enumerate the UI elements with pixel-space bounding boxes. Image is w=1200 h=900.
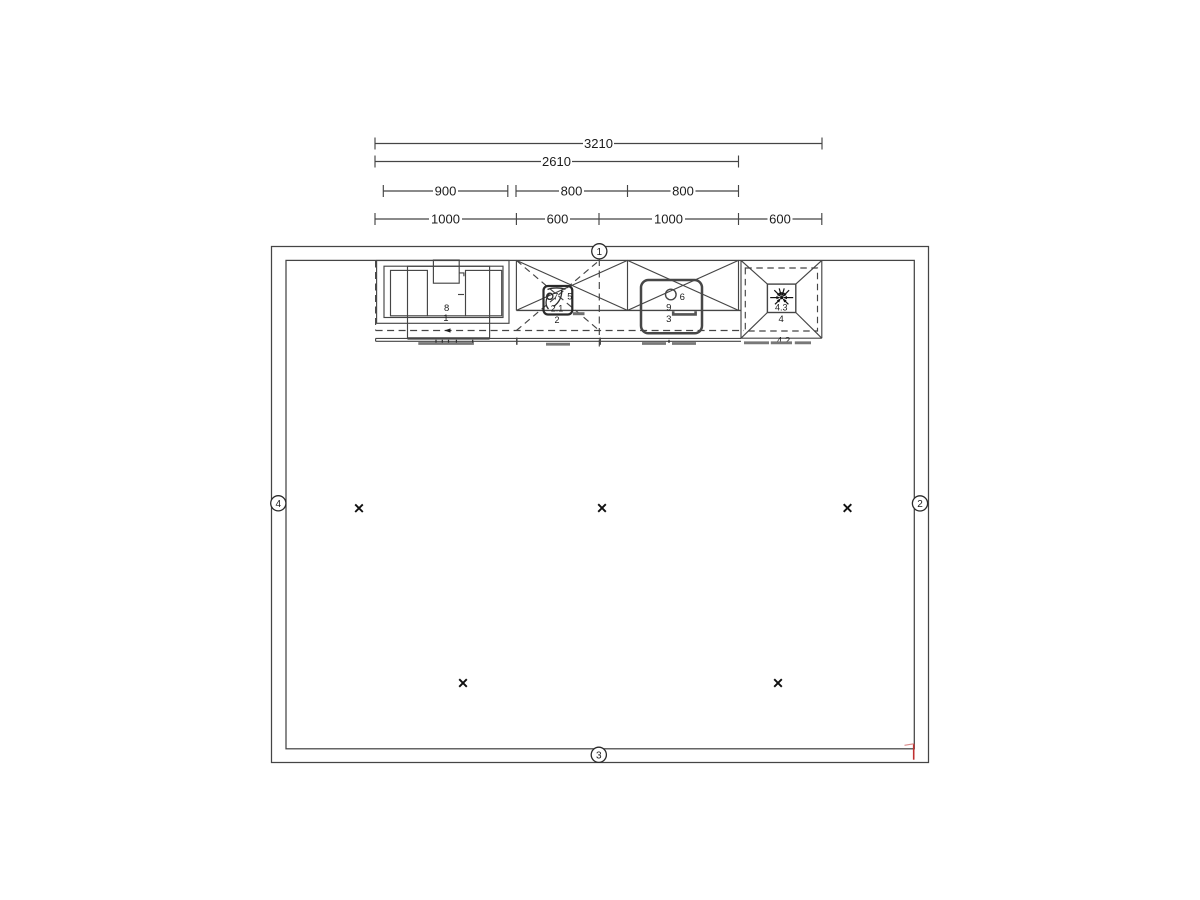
svg-text:4: 4: [779, 314, 784, 325]
svg-text:4.3: 4.3: [775, 303, 788, 313]
svg-text:800: 800: [672, 184, 694, 199]
svg-text:2610: 2610: [542, 154, 571, 169]
svg-text:2: 2: [917, 499, 923, 510]
svg-text:1000: 1000: [654, 212, 683, 227]
svg-text:3: 3: [666, 314, 671, 325]
svg-text:4: 4: [276, 499, 282, 510]
svg-text:2: 2: [554, 315, 559, 325]
svg-text:800: 800: [561, 184, 583, 199]
svg-text:1000: 1000: [431, 212, 460, 227]
svg-text:6: 6: [680, 292, 685, 303]
svg-text:2.1: 2.1: [551, 303, 564, 313]
svg-text:1: 1: [443, 313, 448, 324]
svg-text:3: 3: [596, 751, 602, 762]
svg-text:1: 1: [597, 247, 603, 258]
svg-text:900: 900: [435, 184, 457, 199]
svg-text:9: 9: [666, 303, 671, 314]
svg-text:3210: 3210: [584, 136, 613, 151]
svg-text:600: 600: [547, 212, 569, 227]
svg-text:7: 7: [553, 291, 558, 301]
svg-text:600: 600: [769, 212, 791, 227]
svg-text:5: 5: [567, 291, 572, 301]
svg-text:8: 8: [444, 303, 449, 314]
svg-text:4.2: 4.2: [777, 336, 790, 347]
